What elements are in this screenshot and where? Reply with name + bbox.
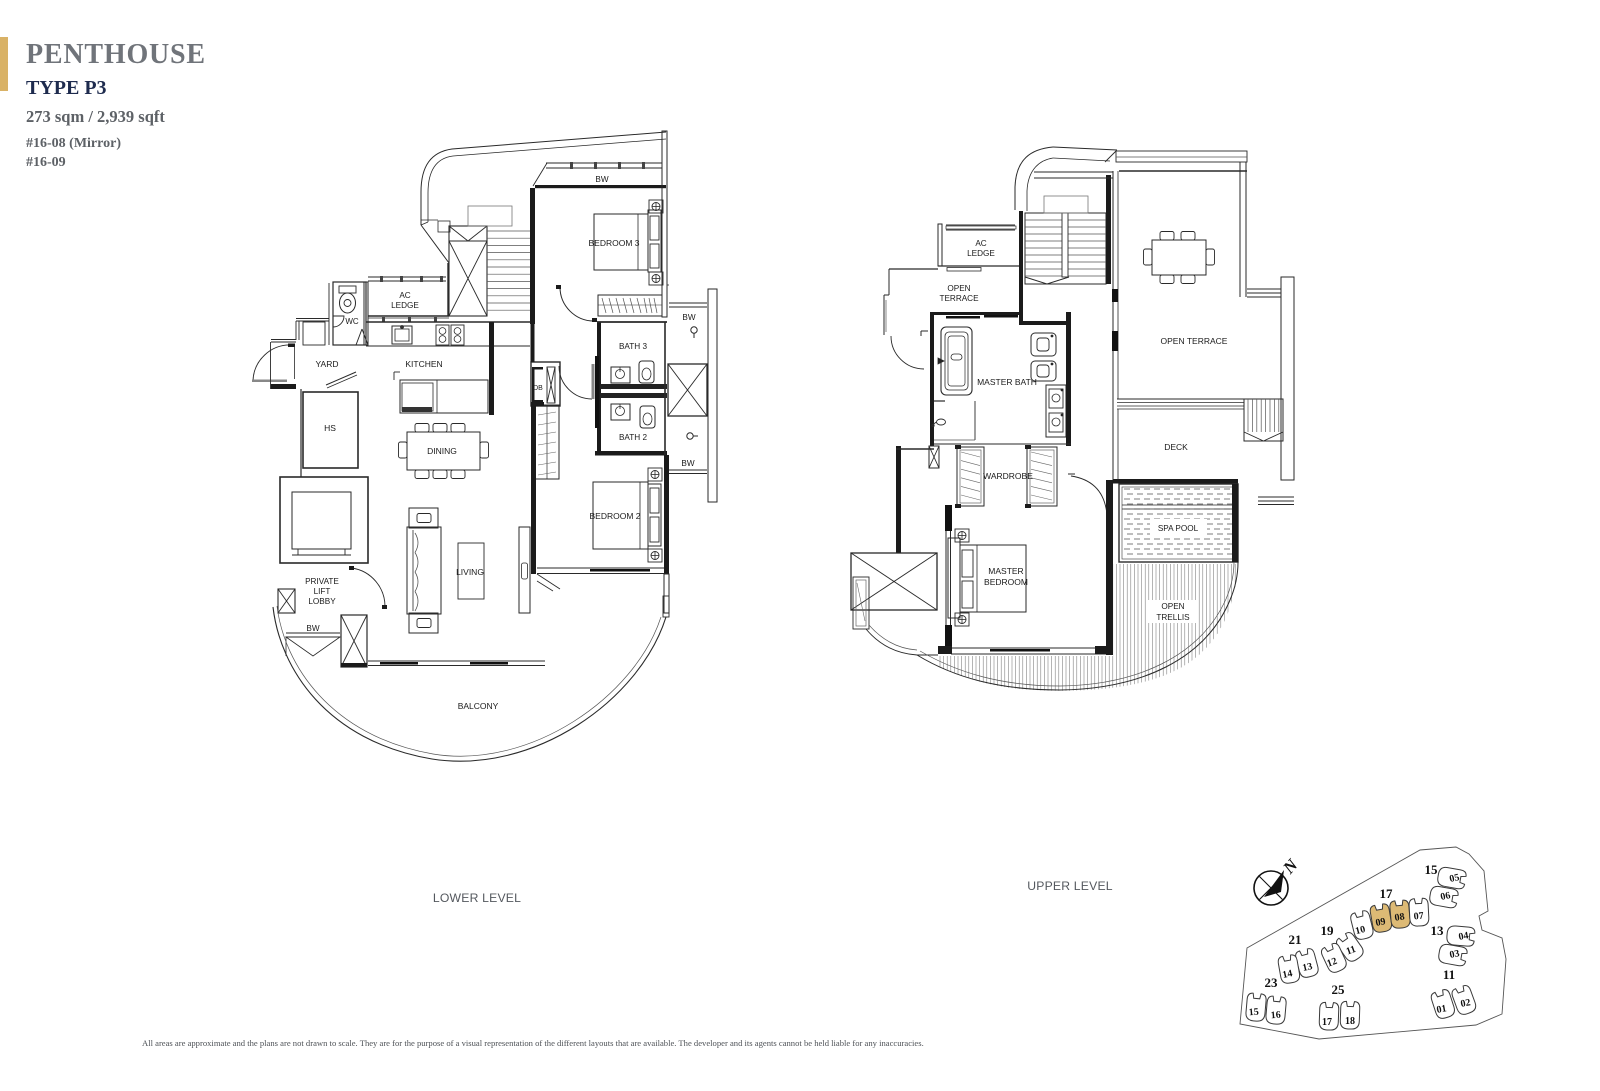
svg-text:TERRACE: TERRACE xyxy=(939,294,979,303)
svg-text:273 sqm / 2,939 sqft: 273 sqm / 2,939 sqft xyxy=(26,107,165,126)
svg-text:OPEN TERRACE: OPEN TERRACE xyxy=(1161,336,1228,346)
svg-text:OPEN: OPEN xyxy=(1161,602,1184,611)
svg-text:25: 25 xyxy=(1332,982,1346,997)
svg-text:MASTER: MASTER xyxy=(988,566,1023,576)
svg-text:08: 08 xyxy=(1394,911,1405,923)
svg-text:PENTHOUSE: PENTHOUSE xyxy=(26,39,206,70)
svg-text:PRIVATE: PRIVATE xyxy=(305,577,339,586)
svg-text:09: 09 xyxy=(1375,916,1387,929)
svg-text:LIFT: LIFT xyxy=(314,587,331,596)
svg-text:KITCHEN: KITCHEN xyxy=(405,359,442,369)
svg-text:01: 01 xyxy=(1436,1003,1448,1016)
svg-text:MASTER BATH: MASTER BATH xyxy=(977,377,1037,387)
svg-text:BATH 3: BATH 3 xyxy=(619,342,648,351)
svg-text:13: 13 xyxy=(1431,923,1445,938)
svg-text:#16-09: #16-09 xyxy=(26,155,66,170)
svg-text:07: 07 xyxy=(1413,911,1424,923)
svg-text:LOWER LEVEL: LOWER LEVEL xyxy=(433,891,521,905)
svg-text:TRELLIS: TRELLIS xyxy=(1156,613,1190,622)
svg-text:BEDROOM 3: BEDROOM 3 xyxy=(588,238,639,248)
svg-text:04: 04 xyxy=(1458,930,1470,943)
svg-text:TYPE P3: TYPE P3 xyxy=(26,77,107,99)
svg-text:02: 02 xyxy=(1460,997,1472,1010)
svg-text:BATH 2: BATH 2 xyxy=(619,433,648,442)
svg-text:15: 15 xyxy=(1248,1007,1259,1019)
svg-text:WARDROBE: WARDROBE xyxy=(983,471,1033,481)
svg-text:BW: BW xyxy=(306,624,319,633)
svg-text:LOBBY: LOBBY xyxy=(308,597,336,606)
svg-text:15: 15 xyxy=(1425,862,1439,877)
svg-text:LEDGE: LEDGE xyxy=(391,301,419,310)
svg-text:21: 21 xyxy=(1289,932,1302,947)
svg-text:BW: BW xyxy=(595,175,608,184)
svg-text:YARD: YARD xyxy=(316,359,339,369)
svg-text:BW: BW xyxy=(682,313,695,322)
svg-text:LIVING: LIVING xyxy=(456,567,484,577)
svg-text:WC: WC xyxy=(345,317,359,326)
svg-text:03: 03 xyxy=(1449,948,1461,961)
svg-text:UPPER LEVEL: UPPER LEVEL xyxy=(1027,879,1113,893)
svg-text:BALCONY: BALCONY xyxy=(458,701,499,711)
svg-text:LEDGE: LEDGE xyxy=(967,249,995,258)
svg-text:BEDROOM: BEDROOM xyxy=(984,577,1028,587)
svg-text:11: 11 xyxy=(1443,967,1455,982)
svg-text:BEDROOM 2: BEDROOM 2 xyxy=(589,511,640,521)
svg-text:DB: DB xyxy=(533,385,543,392)
svg-text:AC: AC xyxy=(399,291,410,300)
svg-text:BW: BW xyxy=(681,459,694,468)
svg-text:23: 23 xyxy=(1265,975,1279,990)
svg-text:19: 19 xyxy=(1321,923,1335,938)
svg-text:16: 16 xyxy=(1270,1010,1281,1022)
svg-text:SPA POOL: SPA POOL xyxy=(1158,524,1199,533)
svg-text:DINING: DINING xyxy=(427,446,457,456)
svg-text:OPEN: OPEN xyxy=(947,284,970,293)
svg-text:17: 17 xyxy=(1322,1017,1332,1028)
svg-text:#16-08 (Mirror): #16-08 (Mirror) xyxy=(26,136,121,151)
svg-text:All areas are approximate and: All areas are approximate and the plans … xyxy=(142,1038,924,1048)
svg-text:AC: AC xyxy=(975,239,986,248)
svg-text:17: 17 xyxy=(1380,886,1394,901)
svg-text:18: 18 xyxy=(1345,1016,1355,1027)
svg-text:HS: HS xyxy=(324,423,336,433)
svg-text:DECK: DECK xyxy=(1164,442,1188,452)
